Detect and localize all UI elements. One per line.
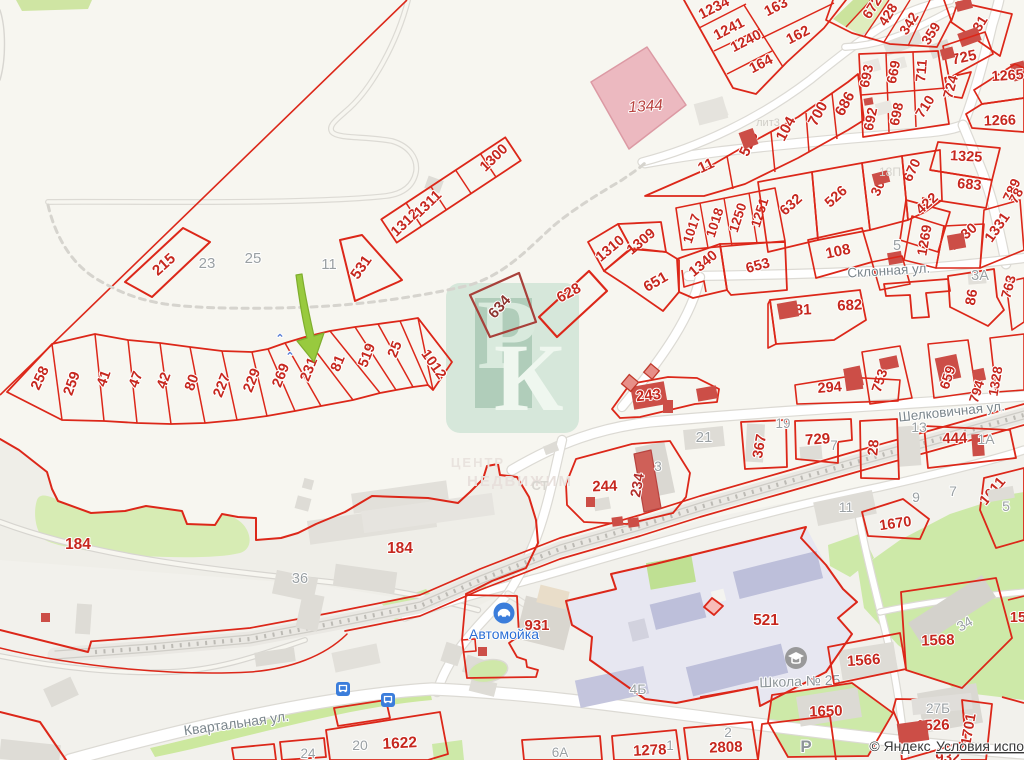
svg-text:ЦЕНТР: ЦЕНТР [451, 455, 505, 470]
svg-text:444: 444 [942, 430, 968, 448]
svg-text:Школа № 25: Школа № 25 [759, 672, 841, 691]
svg-text:28: 28 [865, 439, 882, 456]
svg-text:184: 184 [65, 536, 91, 553]
svg-text:18П: 18П [879, 165, 901, 179]
svg-text:86: 86 [963, 288, 982, 307]
svg-text:9: 9 [912, 489, 920, 505]
svg-text:36: 36 [292, 571, 308, 587]
svg-text:1568: 1568 [921, 631, 955, 649]
svg-text:7: 7 [830, 438, 838, 453]
svg-text:4Б: 4Б [630, 681, 647, 697]
svg-text:⌃: ⌃ [275, 333, 284, 345]
svg-text:6А: 6А [552, 745, 569, 760]
svg-text:1: 1 [666, 738, 674, 753]
svg-text:СТ: СТ [531, 478, 548, 493]
svg-text:7: 7 [949, 483, 957, 499]
svg-text:11: 11 [321, 256, 337, 273]
svg-text:Условия испо: Условия испо [936, 738, 1024, 754]
svg-text:1278: 1278 [633, 741, 667, 760]
svg-text:15: 15 [1010, 610, 1024, 626]
svg-text:184: 184 [387, 540, 413, 557]
svg-text:683: 683 [957, 176, 983, 194]
svg-text:3: 3 [654, 459, 662, 474]
svg-text:1265: 1265 [991, 67, 1024, 85]
svg-text:20: 20 [352, 737, 368, 753]
svg-text:11: 11 [839, 499, 854, 515]
svg-text:© Яндекс: © Яндекс [869, 738, 930, 754]
svg-text:1344: 1344 [628, 97, 664, 116]
svg-text:1566: 1566 [846, 651, 880, 670]
svg-text:⌃: ⌃ [285, 351, 294, 363]
svg-text:1622: 1622 [382, 734, 417, 753]
svg-text:24: 24 [300, 746, 316, 760]
svg-text:27Б: 27Б [926, 701, 950, 716]
svg-text:21: 21 [696, 429, 713, 446]
svg-text:294: 294 [817, 379, 842, 397]
svg-text:521: 521 [753, 612, 779, 629]
svg-text:13: 13 [911, 419, 927, 435]
svg-text:Р: Р [800, 737, 811, 756]
svg-text:2: 2 [724, 725, 732, 740]
svg-text:5: 5 [1002, 498, 1010, 514]
svg-text:К: К [494, 324, 564, 431]
svg-text:25: 25 [245, 250, 262, 267]
svg-text:1325: 1325 [950, 148, 983, 166]
svg-text:729: 729 [805, 430, 831, 449]
svg-text:НЕДВИЖИМ: НЕДВИЖИМ [467, 473, 573, 490]
svg-text:23: 23 [199, 255, 216, 272]
svg-text:19: 19 [775, 416, 790, 431]
svg-text:лит3: лит3 [756, 117, 780, 129]
svg-text:1266: 1266 [983, 112, 1016, 129]
svg-text:711: 711 [912, 58, 930, 82]
svg-text:Автомойка: Автомойка [469, 626, 539, 642]
svg-text:244: 244 [592, 478, 618, 496]
svg-text:2808: 2808 [709, 738, 743, 756]
svg-text:682: 682 [837, 296, 863, 314]
svg-text:3А: 3А [971, 268, 989, 284]
svg-text:1А: 1А [977, 431, 995, 447]
svg-text:243: 243 [635, 386, 662, 406]
